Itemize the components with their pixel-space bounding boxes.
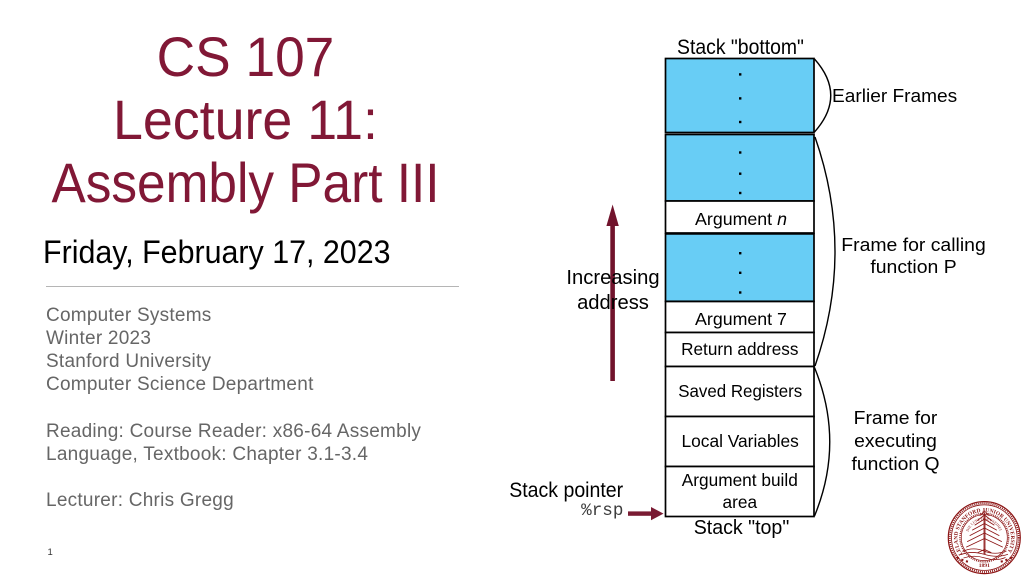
svg-text:1891: 1891 — [979, 563, 990, 569]
